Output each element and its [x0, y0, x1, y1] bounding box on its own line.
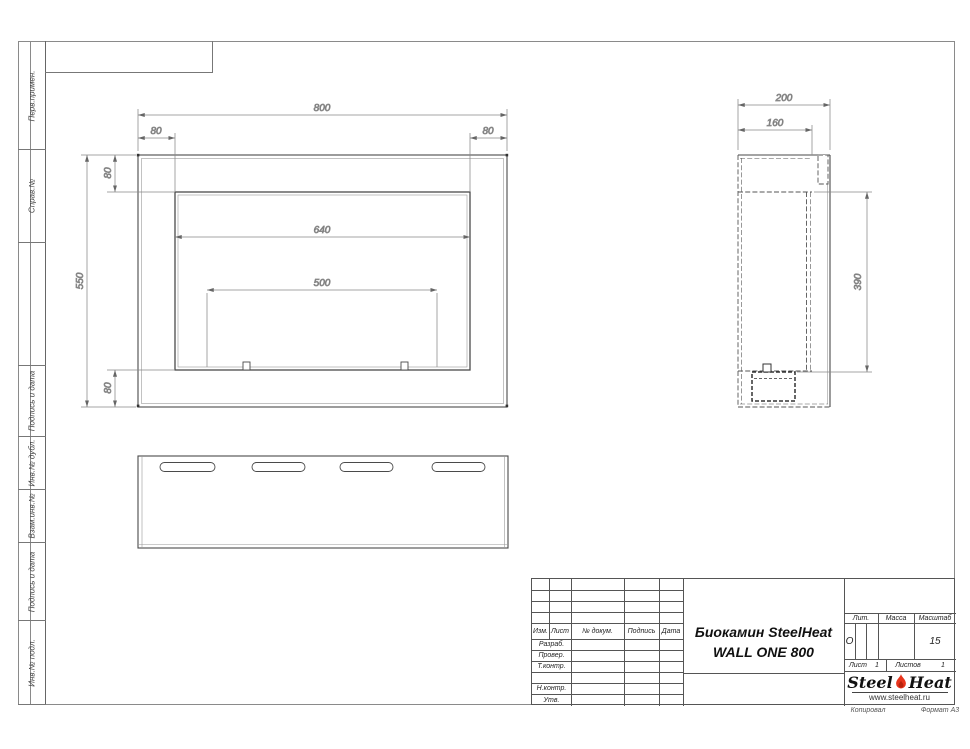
row-razrab: Разраб.: [532, 639, 571, 650]
document-title: Биокамин SteelHeat WALL ONE 800: [683, 617, 844, 667]
dim-80-top: 80: [103, 167, 114, 179]
lit-label: Лит.: [844, 613, 878, 623]
front-view-dimensions: 800 80 80 550 80 80 640 500: [75, 103, 507, 407]
vent-slot: [340, 463, 393, 472]
sheets-value: 1: [932, 659, 954, 671]
dim-640: 640: [314, 225, 331, 236]
lit-value: О: [844, 623, 855, 659]
dim-160: 160: [767, 118, 784, 129]
dim-390: 390: [853, 273, 864, 290]
vent-slot: [160, 463, 215, 472]
sheet-value: 1: [870, 659, 884, 671]
sheets-label: Листов: [888, 659, 928, 671]
row-nkontr: Н.контр.: [532, 683, 571, 694]
dim-80-right: 80: [482, 126, 494, 137]
vent-slot: [432, 463, 485, 472]
burner-tab-right: [401, 362, 408, 370]
dim-80-left: 80: [150, 126, 162, 137]
row-tkontr: Т.контр.: [532, 661, 571, 672]
company-logo: Steel Heat www.steelheat.ru: [844, 671, 955, 705]
mount-notch: [818, 155, 828, 184]
bottom-view: [138, 456, 508, 548]
col-date: Дата: [659, 623, 683, 639]
scale-value: 15: [914, 623, 956, 659]
logo-word-heat: Heat: [909, 675, 952, 691]
row-utv: Утв.: [532, 694, 571, 706]
dim-80-bottom: 80: [103, 382, 114, 394]
side-view-hidden-lines: [738, 155, 830, 407]
side-view-burner: [752, 364, 795, 401]
dim-500: 500: [314, 278, 331, 289]
logo-word-steel: Steel: [847, 675, 892, 691]
title-block: Изм. Лист № докум. Подпись Дата Разраб. …: [531, 578, 955, 705]
vent-slot: [252, 463, 305, 472]
copied-label: Копировал: [843, 707, 893, 714]
col-doc: № докум.: [571, 623, 624, 639]
dim-200: 200: [775, 93, 793, 104]
flame-icon: [894, 674, 908, 691]
sheet-label: Лист: [846, 659, 870, 671]
side-view-dimensions: 200 160 390: [738, 93, 872, 372]
drawing-sheet: Перв.примен. Справ.№ Подпись и дата Инв.…: [0, 0, 970, 749]
dim-550: 550: [75, 272, 86, 289]
col-sign: Подпись: [624, 623, 659, 639]
side-view: [738, 155, 830, 407]
format-label: Формат А3: [916, 707, 964, 714]
row-prover: Провер.: [532, 650, 571, 661]
burner-tab-left: [243, 362, 250, 370]
title-line-2: WALL ONE 800: [713, 642, 814, 662]
title-line-1: Биокамин SteelHeat: [695, 622, 832, 642]
logo-url: www.steelheat.ru: [869, 693, 930, 702]
col-list: Лист: [549, 623, 571, 639]
col-izm: Изм.: [532, 623, 549, 639]
scale-label: Масштаб: [914, 613, 956, 623]
mass-label: Масса: [878, 613, 914, 623]
dim-800: 800: [314, 103, 331, 114]
